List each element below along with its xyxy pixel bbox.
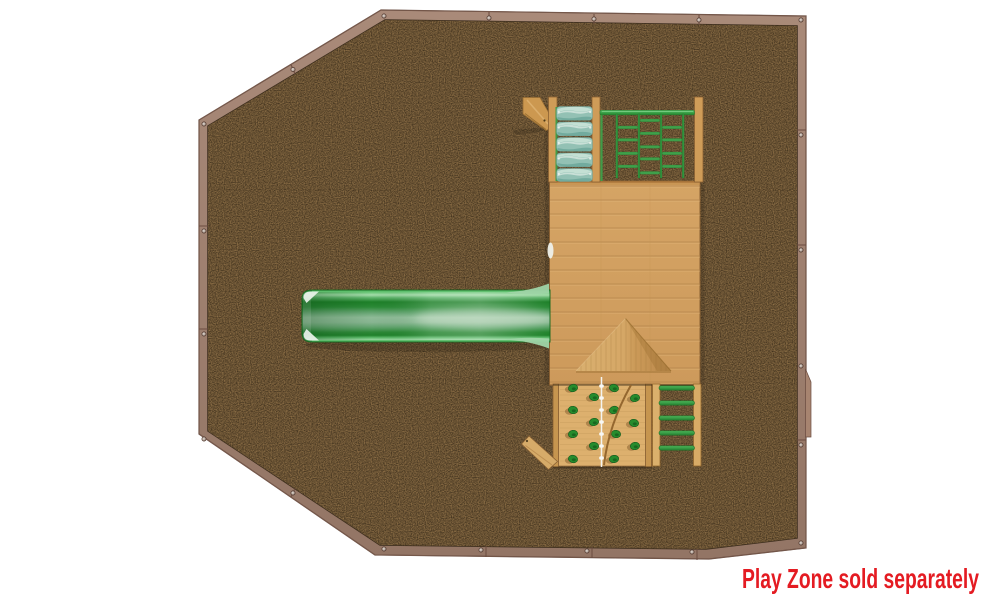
svg-text:Play Zone sold separately: Play Zone sold separately <box>742 563 979 594</box>
